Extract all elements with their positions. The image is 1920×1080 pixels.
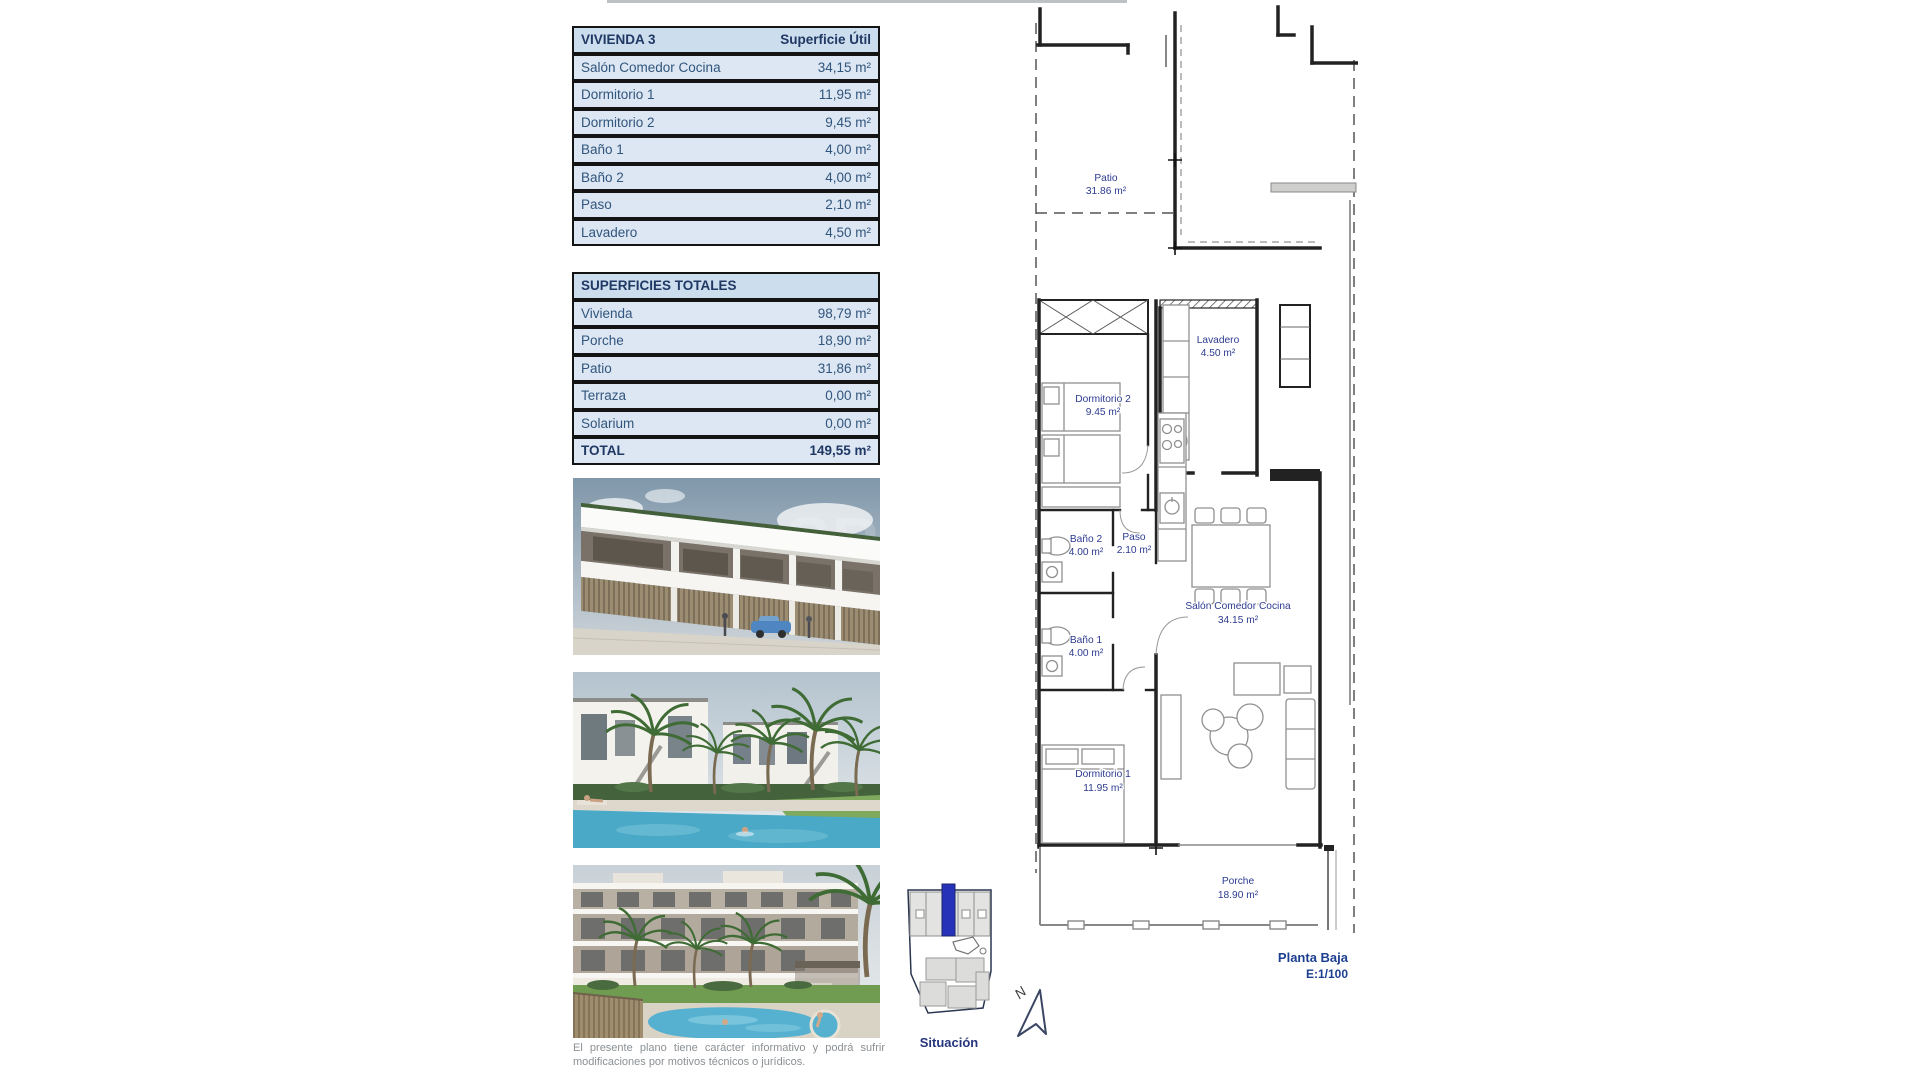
svg-text:2.10 m²: 2.10 m² <box>1117 545 1152 556</box>
row-label: Baño 2 <box>581 170 624 185</box>
floor-plan-drawing: Patio 31.86 m² Lavadero 4.50 m² Dormitor… <box>1028 5 1358 990</box>
plan-title: Planta Baja <box>1278 950 1349 965</box>
row-label: Porche <box>581 333 624 348</box>
svg-text:4.00 m²: 4.00 m² <box>1069 648 1104 659</box>
table-row: Terraza 0,00 m² <box>574 384 878 410</box>
room-label-porche: Porche <box>1222 876 1255 887</box>
table-row: Porche 18,90 m² <box>574 329 878 355</box>
spa-pool <box>811 1011 839 1038</box>
row-value: 4,00 m² <box>825 142 871 157</box>
table-row: Dormitorio 2 9,45 m² <box>574 111 878 137</box>
site-map: Situación <box>898 876 1000 1050</box>
unit-area-table: VIVIENDA 3 Superficie Útil Salón Comedor… <box>572 26 880 246</box>
row-label: Dormitorio 1 <box>581 87 655 102</box>
row-label: Solarium <box>581 416 634 431</box>
svg-text:9.45 m²: 9.45 m² <box>1086 407 1121 418</box>
table-row: Vivienda 98,79 m² <box>574 302 878 328</box>
porch-walls <box>1040 845 1336 930</box>
svg-text:4.00 m²: 4.00 m² <box>1069 547 1104 558</box>
table-row: Paso 2,10 m² <box>574 193 878 219</box>
row-label: Terraza <box>581 388 626 403</box>
table-row: Baño 1 4,00 m² <box>574 138 878 164</box>
table-row: Dormitorio 1 11,95 m² <box>574 83 878 109</box>
row-label: Paso <box>581 197 612 212</box>
site-map-label: Situación <box>898 1035 1000 1050</box>
totals-table: SUPERFICIES TOTALES Vivienda 98,79 m² Po… <box>572 272 880 465</box>
row-value: 31,86 m² <box>818 361 871 376</box>
svg-text:4.50 m²: 4.50 m² <box>1201 348 1236 359</box>
room-label-dormitorio-1: Dormitorio 1 <box>1075 769 1131 780</box>
table-row: Solarium 0,00 m² <box>574 412 878 438</box>
svg-text:34.15 m²: 34.15 m² <box>1218 615 1259 626</box>
row-value: 0,00 m² <box>825 388 871 403</box>
furniture <box>1042 305 1315 843</box>
row-value: 18,90 m² <box>818 333 871 348</box>
table-header-row: SUPERFICIES TOTALES <box>574 274 878 300</box>
row-value: 4,50 m² <box>825 225 871 240</box>
unit-table-title-value: Superficie Útil <box>780 32 871 47</box>
svg-text:11.95 m²: 11.95 m² <box>1083 783 1123 794</box>
table-row: Baño 2 4,00 m² <box>574 166 878 192</box>
table-total-row: TOTAL 149,55 m² <box>574 439 878 463</box>
floorplan-brochure-page: { "unit_table": { "title": "VIVIENDA 3",… <box>0 0 1920 1080</box>
unit-table-title: VIVIENDA 3 <box>581 32 656 47</box>
photo-render-townhouses: SP <box>573 478 880 655</box>
row-value: 2,10 m² <box>825 197 871 212</box>
row-value: 98,79 m² <box>818 306 871 321</box>
photo-render-pool-palms <box>573 672 880 848</box>
swimmer <box>722 1019 728 1025</box>
photo-render-apartments <box>573 865 880 1038</box>
room-label-bano-2: Baño 2 <box>1070 534 1103 545</box>
room-label-salon: Salón Comedor Cocina <box>1185 601 1291 612</box>
row-label: Dormitorio 2 <box>581 115 655 130</box>
room-label-lavadero: Lavadero <box>1197 335 1240 346</box>
table-header-row: VIVIENDA 3 Superficie Útil <box>574 28 878 54</box>
row-label: Baño 1 <box>581 142 624 157</box>
room-label-bano-1: Baño 1 <box>1070 635 1103 646</box>
site-map-drawing <box>898 876 1000 1028</box>
row-value: 11,95 m² <box>819 87 871 102</box>
table-row: Patio 31,86 m² <box>574 357 878 383</box>
svg-text:18.90 m²: 18.90 m² <box>1218 890 1259 901</box>
row-value: 0,00 m² <box>825 416 871 431</box>
scan-artifact-line <box>607 0 1127 3</box>
totals-table-title: SUPERFICIES TOTALES <box>581 278 737 293</box>
highlighted-plot <box>942 884 955 936</box>
room-label-dormitorio-2: Dormitorio 2 <box>1075 394 1131 405</box>
plan-scale: E:1/100 <box>1306 967 1348 981</box>
room-label-paso: Paso <box>1122 532 1146 543</box>
table-row: Lavadero 4,50 m² <box>574 221 878 245</box>
total-value: 149,55 m² <box>809 443 871 458</box>
area-tables-panel: VIVIENDA 3 Superficie Útil Salón Comedor… <box>572 26 880 465</box>
table-row: Salón Comedor Cocina 34,15 m² <box>574 56 878 82</box>
row-value: 4,00 m² <box>825 170 871 185</box>
row-value: 9,45 m² <box>825 115 871 130</box>
room-label-patio: Patio <box>1094 173 1118 184</box>
svg-text:31.86 m²: 31.86 m² <box>1086 186 1127 197</box>
row-value: 34,15 m² <box>818 60 871 75</box>
row-label: Vivienda <box>581 306 633 321</box>
north-arrow: N <box>1010 982 1060 1044</box>
row-label: Lavadero <box>581 225 637 240</box>
row-label: Patio <box>581 361 612 376</box>
total-label: TOTAL <box>581 443 625 458</box>
row-label: Salón Comedor Cocina <box>581 60 721 75</box>
disclaimer-text: El presente plano tiene carácter informa… <box>573 1042 885 1070</box>
